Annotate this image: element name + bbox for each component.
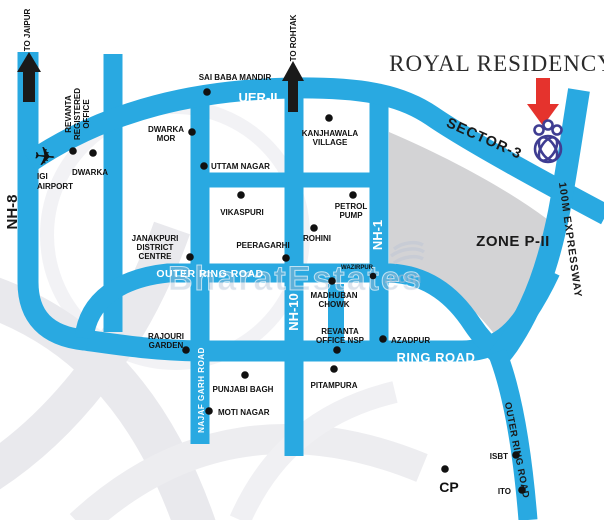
label-rajouri-1: RAJOURI <box>148 332 184 341</box>
label-revanta-registered-3: OFFICE <box>82 99 91 129</box>
nh10-road-label: NH-10 <box>286 293 301 331</box>
label-isbt: ISBT <box>490 452 508 461</box>
ito-dot <box>518 486 526 494</box>
nh1-road-label: NH-1 <box>370 220 385 250</box>
label-revanta-registered-1: REVANTA <box>64 95 73 133</box>
label-madhuban-1: MADHUBAN <box>310 291 357 300</box>
rohini-dot <box>310 224 318 232</box>
isbt-dot <box>512 451 520 459</box>
label-uttam-nagar: UTTAM NAGAR <box>211 162 270 171</box>
label-revanta-nsp-1: REVANTA <box>321 327 359 336</box>
dwarka-dot <box>89 149 97 157</box>
label-kanjhawala-2: VILLAGE <box>313 138 348 147</box>
vikaspuri-dot <box>237 191 245 199</box>
cp-dot <box>441 465 449 473</box>
label-kanjhawala-1: KANJHAWALA <box>302 129 359 138</box>
moti-nagar-dot <box>205 407 213 415</box>
revanta-registered-dot <box>69 147 77 155</box>
label-igi-airport-1: IGI <box>37 172 48 181</box>
label-rajouri-2: GARDEN <box>149 341 184 350</box>
ring-road-label: RING ROAD <box>397 350 476 365</box>
label-petrol-pump-2: PUMP <box>339 211 363 220</box>
revanta-nsp-dot <box>333 346 341 354</box>
label-janakpuri-3: CENTRE <box>139 252 173 261</box>
label-moti-nagar: MOTI NAGAR <box>218 408 270 417</box>
label-revanta-registered-2: REGISTERED <box>73 88 82 140</box>
label-pitampura: PITAMPURA <box>311 381 358 390</box>
label-petrol-pump-1: PETROL <box>335 202 368 211</box>
peeragarhi-dot <box>282 254 290 262</box>
pitampura-dot <box>330 365 338 373</box>
label-madhuban-2: CHOWK <box>318 300 349 309</box>
royal-residency-down-arrow-icon <box>527 78 559 126</box>
label-punjabi-bagh: PUNJABI BAGH <box>213 385 274 394</box>
nh8-road-label: NH-8 <box>4 194 21 229</box>
label-vikaspuri: VIKASPURI <box>220 208 264 217</box>
label-janakpuri-2: DISTRICT <box>137 243 174 252</box>
azadpur-dot <box>379 335 387 343</box>
najafgarh-road-label: NAJAF GARH ROAD <box>197 347 206 433</box>
label-sai-baba-mandir: SAI BABA MANDIR <box>199 73 272 82</box>
label-peeragarhi: PEERAGARHI <box>236 241 289 250</box>
label-azadpur: AZADPUR <box>391 336 430 345</box>
royal-residency-location-map: BharatEstates .com UER-II OUTER RING ROA… <box>0 0 604 520</box>
map-title: ROYAL RESIDENCY <box>389 51 604 76</box>
uer2-road-label: UER-II <box>239 90 278 105</box>
uttam-nagar-dot <box>200 162 208 170</box>
royal-residency-crest-icon <box>535 121 562 164</box>
label-ito: ITO <box>498 487 511 496</box>
airplane-icon: ✈ <box>33 141 58 173</box>
punjabi-bagh-dot <box>241 371 249 379</box>
outer-ring-road-label: OUTER RING ROAD <box>156 268 263 280</box>
label-janakpuri-1: JANAKPURI <box>132 234 179 243</box>
label-igi-airport-2: AIRPORT <box>37 182 73 191</box>
dwarka-mor-dot <box>188 128 196 136</box>
to-jaipur-label: TO JAIPUR <box>23 9 32 52</box>
label-dwarka-mor-2: MOR <box>157 134 176 143</box>
watermark-suffix: .com <box>384 270 421 287</box>
to-rohtak-label: TO ROHTAK <box>289 14 298 61</box>
wazirpur-dot <box>370 273 377 280</box>
petrol-pump-dot <box>349 191 357 199</box>
madhuban-chowk-dot <box>328 277 336 285</box>
zone-p2-label: ZONE P-II <box>476 233 550 250</box>
label-dwarka: DWARKA <box>72 168 108 177</box>
janakpuri-dot <box>186 253 194 261</box>
sai-baba-mandir-dot <box>203 88 211 96</box>
label-revanta-nsp-2: OFFICE NSP <box>316 336 365 345</box>
label-cp: CP <box>439 479 458 495</box>
kanjhawala-dot <box>325 114 333 122</box>
label-rohini: ROHINI <box>303 234 331 243</box>
label-dwarka-mor-1: DWARKA <box>148 125 184 134</box>
label-wazirpur: WAZIRPUR <box>341 265 374 271</box>
